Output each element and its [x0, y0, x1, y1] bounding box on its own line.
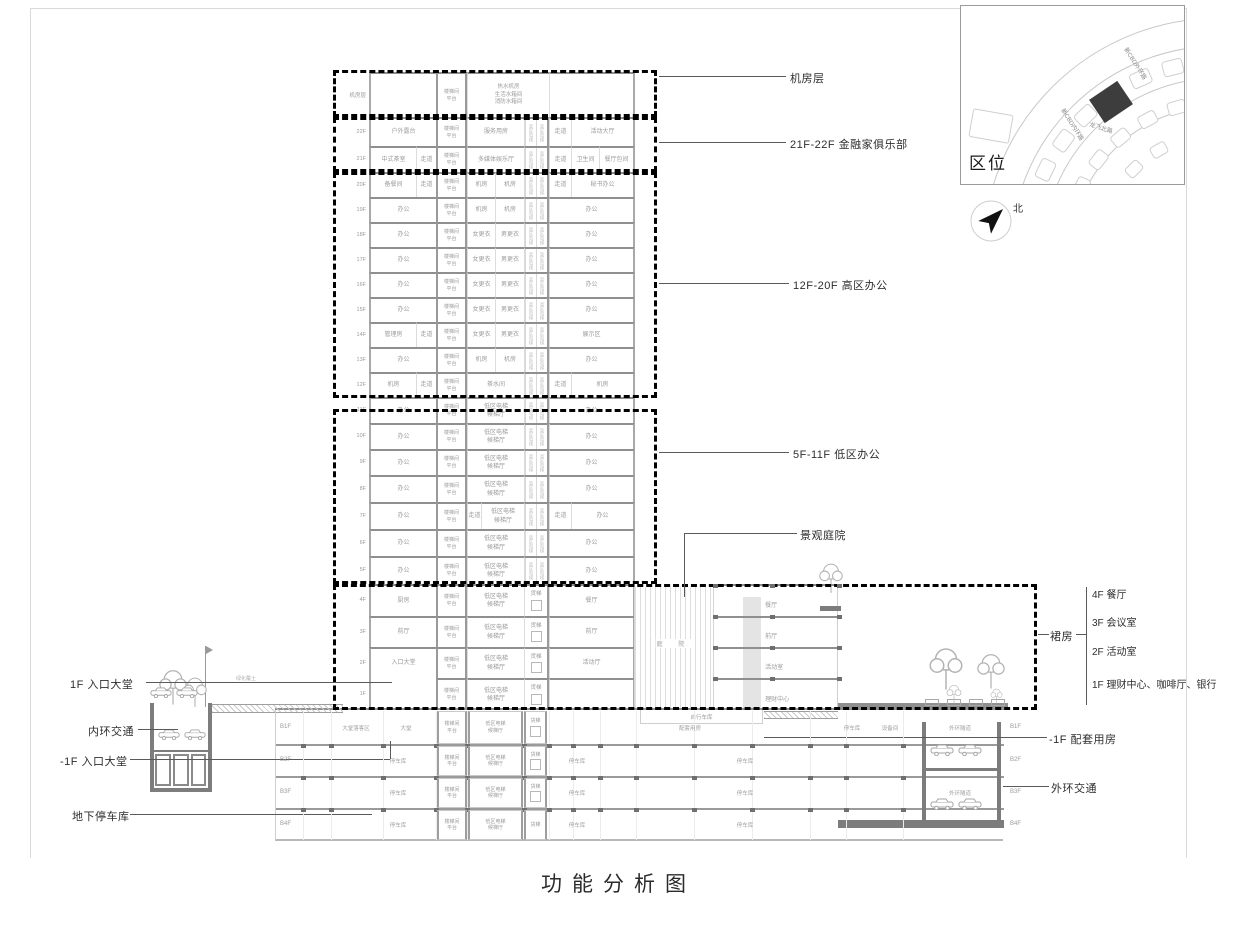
text-line: 办公: [585, 281, 597, 289]
g: [978, 203, 1009, 234]
leader: [1086, 587, 1087, 705]
annotation-podium-2f: 2F 活动室: [1092, 643, 1136, 658]
floor-label: 9F: [343, 449, 369, 475]
high-zone-elevator-shaft: 高区电梯: [525, 119, 536, 146]
text-line: 办公: [585, 206, 597, 214]
text-line: 办公: [585, 231, 597, 239]
column-nub: [808, 776, 813, 780]
floor-label: 21F: [343, 146, 369, 172]
room-cell: 机房: [495, 172, 524, 197]
room-cell: 楼梯间平台: [436, 372, 467, 397]
column-nub: [837, 615, 842, 619]
floor-row-2F: 2F入口大堂楼梯间平台低区电梯候梯厅货梯活动厅: [343, 647, 635, 678]
floor-row-5F: 5F办公楼梯间平台低区电梯候梯厅高区电梯高区电梯办公: [343, 556, 635, 584]
annotation-podium-group: 裙房: [1050, 628, 1073, 644]
room-cell: 办公: [549, 347, 635, 372]
room-cell: 办公: [549, 397, 635, 423]
annotation-high-office: 12F-20F 高区办公: [793, 277, 888, 293]
text-line: 楼梯间: [444, 179, 459, 186]
annotation-podium-3f: 3F 会议室: [1092, 614, 1136, 629]
freight-elevator-label: 货梯: [530, 685, 541, 692]
text-line: 平台: [446, 695, 456, 702]
high-zone-elevator-shaft: 高区电梯: [525, 504, 536, 529]
text-line: 办公: [397, 433, 409, 441]
text-line: 候梯厅: [487, 633, 505, 641]
column-nub: [844, 776, 849, 780]
room-cell: 楼梯间平台: [436, 247, 467, 272]
column-nub: [713, 646, 718, 650]
text-line: 平台: [446, 361, 456, 368]
text-line: 办公: [397, 306, 409, 314]
text-line: 办公: [397, 231, 409, 239]
elevator-shaft: 高区电梯高区电梯: [524, 117, 549, 146]
floor-label: 2F: [343, 647, 369, 678]
high-zone-elevator-shaft: 高区电梯: [525, 477, 536, 502]
leader: [659, 76, 786, 77]
text-line: 入口大堂: [391, 659, 415, 667]
elevator-shaft: 高区电梯高区电梯: [524, 347, 549, 372]
leader: [130, 814, 372, 815]
room-cell: 楼梯间平台: [436, 397, 467, 423]
room-cell: 低区电梯候梯厅: [467, 556, 524, 584]
room-cell: 管理房: [369, 322, 416, 347]
high-zone-elevator-shaft: 高区电梯: [525, 531, 536, 556]
text-line: 候梯厅: [488, 728, 503, 735]
floor-label: 4F: [343, 584, 369, 616]
room-label: 活动室: [765, 662, 783, 671]
text-line: 楼梯间: [444, 456, 459, 463]
text-line: 女更衣: [472, 256, 490, 264]
room-cell: 楼梯间平台: [436, 146, 467, 172]
annotation-lobby-b1: -1F 入口大堂: [60, 753, 128, 769]
text-line: 办公: [397, 356, 409, 364]
room-cell: 办公: [369, 247, 436, 272]
room-cell: 机房: [467, 197, 495, 222]
annotation-b1-support: -1F 配套用房: [1049, 731, 1117, 747]
high-zone-elevator-shaft: 高区电梯: [525, 174, 536, 197]
elevator-shaft: 高区电梯高区电梯: [524, 502, 549, 529]
rect: [1110, 127, 1132, 149]
column-nub: [844, 808, 849, 812]
high-zone-elevator-shaft: 高区电梯: [525, 274, 536, 297]
north-label: 北: [1013, 200, 1023, 215]
room-cell: 中式茶室: [369, 146, 416, 172]
text-line: 平台: [446, 186, 456, 193]
text-line: 平台: [446, 463, 456, 470]
high-zone-elevator-shaft: 高区电梯: [525, 148, 536, 172]
column-nub: [547, 744, 552, 748]
room-label: 餐厅: [765, 600, 777, 609]
text-line: 货梯: [530, 784, 540, 791]
text-line: 平台: [447, 761, 457, 768]
room-label: 停车库: [390, 789, 407, 797]
ring-roads: [983, 18, 1184, 184]
text-line: 楼梯间: [444, 304, 459, 311]
text-line: 低区电梯: [484, 535, 508, 543]
text-line: 走道: [420, 381, 432, 389]
column-nub: [692, 776, 697, 780]
text-line: 平台: [446, 286, 456, 293]
column-nub: [381, 776, 386, 780]
annotation-low-office: 5F-11F 低区办公: [793, 446, 880, 462]
floor-row-20F: 20F备餐间走道楼梯间平台机房机房高区电梯高区电梯走道秘书办公: [343, 172, 635, 197]
podium-right-section: 餐厅 前厅 活动室 理财中心: [713, 584, 838, 710]
text-line: 走道: [554, 181, 566, 189]
room-label: 大堂: [400, 724, 411, 732]
text-line: 机房: [475, 206, 487, 214]
basement-core-cell: 低区电梯候梯厅: [468, 746, 523, 776]
high-zone-elevator-shaft: 高区电梯: [525, 349, 536, 372]
high-zone-elevator-shaft: 高区电梯: [536, 374, 547, 397]
room-cell: 机房: [495, 347, 524, 372]
room-cell: 办公: [369, 397, 436, 423]
room-cell: 办公: [369, 423, 436, 449]
text-line: 平台: [446, 211, 456, 218]
high-zone-elevator-shaft: 高区电梯: [536, 119, 547, 146]
deck-label: 绿化覆土: [236, 675, 256, 682]
room-cell: 女更衣: [467, 297, 495, 322]
text-line: 平台: [447, 728, 457, 735]
basement-core-cell: 楼梯间平台: [437, 810, 467, 840]
text-line: 办公: [397, 512, 409, 520]
high-zone-elevator-shaft: 高区电梯: [525, 199, 536, 222]
floor-label: 16F: [343, 272, 369, 297]
text-line: 走道: [554, 128, 566, 136]
room-cell: 货梯: [524, 647, 549, 678]
text-line: 楼梯间: [444, 89, 459, 96]
leader: [138, 729, 178, 730]
column-nub: [547, 808, 552, 812]
high-zone-elevator-shaft: 高区电梯: [536, 249, 547, 272]
room-cell: 走道: [549, 117, 571, 146]
room-cell: 女更衣: [467, 322, 495, 347]
high-zone-elevator-shaft: 高区电梯: [536, 531, 547, 556]
elevator-door-icon: [530, 791, 541, 802]
high-zone-elevator-shaft: 高区电梯: [525, 425, 536, 449]
use: [931, 799, 953, 810]
text-line: 办公: [397, 485, 409, 493]
room-cell: 办公: [549, 272, 635, 297]
text-line: 平台: [446, 236, 456, 243]
room-label: 大堂落客区: [342, 724, 370, 732]
leader: [146, 682, 392, 683]
text-line: 楼梯间: [444, 379, 459, 386]
text-line: 楼梯间: [444, 688, 459, 695]
text-line: 男更衣: [501, 306, 519, 314]
floor-row-11F: 11F办公楼梯间平台低区电梯候梯厅高区电梯高区电梯办公: [343, 397, 635, 423]
text-line: 服务用房: [484, 128, 508, 136]
text-line: 楼梯间: [444, 354, 459, 361]
room-cell: 货梯: [524, 678, 549, 710]
column-nub: [571, 808, 576, 812]
room-cell: 楼梯间平台: [436, 322, 467, 347]
room-cell: 厨房: [369, 584, 436, 616]
room-cell: 机房: [369, 372, 416, 397]
room-cell: [549, 72, 635, 117]
column-nub: [837, 584, 842, 588]
text-line: 机房: [504, 206, 516, 214]
room-cell: 活动大厅: [571, 117, 635, 146]
text-line: 平台: [446, 664, 456, 671]
text-line: 楼梯间: [444, 594, 459, 601]
room-cell: 办公: [571, 502, 635, 529]
column-nub: [301, 808, 306, 812]
elevator-shaft: 高区电梯高区电梯: [524, 222, 549, 247]
leader: [764, 737, 1047, 738]
planter: [925, 699, 939, 706]
text-line: 楼梯间: [444, 510, 459, 517]
elevator-door-icon: [530, 726, 541, 737]
room-cell: 楼梯间平台: [436, 584, 467, 616]
floor-label: 20F: [343, 172, 369, 197]
room-cell: 机房: [571, 372, 635, 397]
room-cell: 低区电梯候梯厅: [467, 423, 524, 449]
rect: [1072, 176, 1092, 184]
outer-tunnel-slab: [922, 768, 1001, 771]
text-line: 低区电梯: [484, 403, 508, 411]
room-cell: 楼梯间平台: [436, 117, 467, 146]
floor-row-15F: 15F办公楼梯间平台女更衣男更衣高区电梯高区电梯办公: [343, 297, 635, 322]
floor-label: 6F: [343, 529, 369, 556]
floor-row-12F: 12F机房走道楼梯间平台茶水间高区电梯高区电梯走道机房: [343, 372, 635, 397]
rect: [969, 109, 1013, 144]
text-line: 候梯厅: [487, 601, 505, 609]
elevator-shaft: 高区电梯高区电梯: [524, 475, 549, 502]
text-line: 前厅: [585, 628, 597, 636]
basement-floor-label: B4F: [280, 821, 291, 827]
text-line: 男更衣: [501, 331, 519, 339]
car-icon: [184, 729, 206, 740]
basement-core-cell: 楼梯间平台: [437, 746, 467, 776]
planter: [947, 699, 961, 706]
room-cell: 餐厅: [549, 584, 635, 616]
rect: [1137, 110, 1159, 130]
text-line: 展示区: [582, 331, 600, 339]
use: [177, 688, 197, 698]
rect: [1052, 128, 1076, 153]
room-cell: 楼梯间平台: [436, 172, 467, 197]
text-line: 候梯厅: [488, 761, 503, 768]
basement-floor-label: B4F: [1010, 821, 1021, 827]
elevator-shaft: 高区电梯高区电梯: [524, 146, 549, 172]
text-line: 楼梯间: [444, 626, 459, 633]
column-nub: [571, 744, 576, 748]
planter: [969, 699, 983, 706]
text-line: 平台: [446, 601, 456, 608]
high-zone-elevator-shaft: 高区电梯: [536, 324, 547, 347]
map-title: 区位: [969, 149, 1007, 174]
column-nub: [692, 808, 697, 812]
floor-row-21F: 21F中式茶室走道楼梯间平台多媒体娱乐厅高区电梯高区电梯走道卫生间餐厅包间: [343, 146, 635, 172]
column-nub: [598, 776, 603, 780]
room-cell: 走道: [467, 502, 481, 529]
elevator-shaft: 高区电梯高区电梯: [524, 372, 549, 397]
tree-icon: [818, 562, 844, 594]
floor-label: 7F: [343, 502, 369, 529]
floor-label: 机房层: [343, 72, 369, 117]
room-label: 理财中心: [765, 694, 789, 703]
column-nub: [770, 584, 775, 588]
car-icon: [958, 744, 982, 756]
use: [959, 745, 981, 756]
room-cell: 走道: [549, 172, 571, 197]
text-line: 平台: [446, 517, 456, 524]
basement-core-cell: 货梯: [524, 711, 547, 744]
annotation-machine-level: 机房层: [790, 70, 825, 86]
annotation-lobby-1f: 1F 入口大堂: [70, 676, 133, 692]
basement-core-cell: 货梯: [524, 746, 547, 776]
leader: [659, 452, 789, 453]
floor-label: 5F: [343, 556, 369, 584]
basement-core-cell: 货梯: [524, 810, 547, 840]
basement-floor-label: B1F: [1010, 724, 1021, 730]
text-line: 楼梯间: [444, 657, 459, 664]
text-line: 货梯: [530, 822, 540, 829]
high-zone-elevator-shaft: 高区电梯: [536, 299, 547, 322]
text-line: 平台: [446, 633, 456, 640]
room-cell: 楼梯间平台: [436, 529, 467, 556]
room-cell: 机房: [495, 197, 524, 222]
floor-label: 10F: [343, 423, 369, 449]
text-line: 机房: [475, 356, 487, 364]
high-zone-elevator-shaft: 高区电梯: [525, 399, 536, 423]
basement-floor-label: B3F: [1010, 789, 1021, 795]
floor-row-4F: 4F厨房楼梯间平台低区电梯候梯厅货梯餐厅: [343, 584, 635, 616]
room-cell: 楼梯间平台: [436, 502, 467, 529]
room-cell: 餐厅包间: [599, 146, 635, 172]
column-nub: [750, 776, 755, 780]
room-cell: 办公: [369, 556, 436, 584]
room-cell: 前厅: [369, 616, 436, 647]
text-line: 楼梯间: [444, 254, 459, 261]
text-line: 活动厅: [582, 659, 600, 667]
floor-label: 13F: [343, 347, 369, 372]
text-line: 候梯厅: [487, 544, 505, 552]
basement-core-cell: 楼梯间平台: [437, 711, 467, 744]
high-zone-elevator-shaft: 高区电梯: [525, 451, 536, 475]
text-line: 走道: [554, 381, 566, 389]
text-line: 楼梯间: [444, 126, 459, 133]
room-cell: 楼梯间平台: [436, 616, 467, 647]
room-label: 停车库: [737, 821, 754, 829]
text-line: 女更衣: [472, 306, 490, 314]
text-line: 楼梯间: [444, 430, 459, 437]
basement-floor-label: B3F: [280, 789, 291, 795]
freight-elevator-label: 货梯: [530, 591, 541, 598]
floor-row-机房层: 机房层楼梯间平台热水机房生活水箱间消防水箱间: [343, 72, 635, 117]
text-line: 候梯厅: [487, 411, 505, 419]
basement-floor-label: B2F: [1010, 757, 1021, 763]
room-cell: 低区电梯候梯厅: [467, 449, 524, 475]
text-line: 候梯厅: [488, 825, 503, 832]
planter: [991, 699, 1005, 706]
floor-row-9F: 9F办公楼梯间平台低区电梯候梯厅高区电梯高区电梯办公: [343, 449, 635, 475]
room-cell: 走道: [549, 502, 571, 529]
text-line: 候梯厅: [487, 695, 505, 703]
text-line: 办公: [397, 407, 409, 415]
room-label: 停车库: [737, 757, 754, 765]
text-line: 低区电梯: [484, 687, 508, 695]
text-line: 办公: [585, 567, 597, 575]
room-cell: 备餐间: [369, 172, 416, 197]
annotation-club: 21F-22F 金融家俱乐部: [790, 136, 908, 152]
drawing-title: 功能分析图: [0, 868, 1237, 898]
column-nub: [301, 776, 306, 780]
room-cell: 低区电梯候梯厅: [467, 584, 524, 616]
text-line: 候梯厅: [487, 490, 505, 498]
high-zone-elevator-shaft: 高区电梯: [525, 558, 536, 584]
room-cell: 楼梯间平台: [436, 72, 467, 117]
high-zone-elevator-shaft: 高区电梯: [525, 224, 536, 247]
car-icon: [930, 798, 954, 810]
room-cell: 办公: [369, 197, 436, 222]
room-cell: 低区电梯候梯厅: [467, 529, 524, 556]
floor-row-18F: 18F办公楼梯间平台女更衣男更衣高区电梯高区电梯办公: [343, 222, 635, 247]
room-cell: 楼梯间平台: [436, 647, 467, 678]
room-cell: 展示区: [549, 322, 635, 347]
room-cell: 楼梯间平台: [436, 347, 467, 372]
text-line: 办公: [585, 256, 597, 264]
sheet-border-left: [30, 8, 31, 858]
room-cell: 办公: [369, 449, 436, 475]
elevator-shaft: 高区电梯高区电梯: [524, 322, 549, 347]
high-zone-elevator-shaft: 高区电梯: [525, 324, 536, 347]
room-cell: 低区电梯候梯厅: [481, 502, 524, 529]
text-line: 平台: [446, 336, 456, 343]
north-arrow-icon: [968, 198, 1016, 246]
elevator-shaft: 高区电梯高区电梯: [524, 397, 549, 423]
basement-floor-label: B1F: [280, 724, 291, 730]
column-nub: [692, 744, 697, 748]
text-line: 低区电梯: [484, 593, 508, 601]
floor-row-10F: 10F办公楼梯间平台低区电梯候梯厅高区电梯高区电梯办公: [343, 423, 635, 449]
room-cell: 低区电梯候梯厅: [467, 475, 524, 502]
text-line: 男更衣: [501, 256, 519, 264]
car-icon: [176, 687, 198, 698]
text-line: 平台: [446, 96, 456, 103]
column-nub: [901, 744, 906, 748]
freight-elevator-label: 货梯: [530, 654, 541, 661]
text-line: 茶水间: [487, 381, 505, 389]
room-cell: 办公: [549, 247, 635, 272]
text-line: 前厅: [397, 628, 409, 636]
high-zone-elevator-shaft: 高区电梯: [536, 504, 547, 529]
text-line: 候梯厅: [487, 571, 505, 579]
floor-row-6F: 6F办公楼梯间平台低区电梯候梯厅高区电梯高区电梯办公: [343, 529, 635, 556]
elevator-shaft: 高区电梯高区电梯: [524, 529, 549, 556]
room-cell: 走道: [416, 372, 436, 397]
room-cell: 货梯: [524, 616, 549, 647]
room-cell: 热水机房生活水箱间消防水箱间: [467, 72, 549, 117]
polygon: [978, 203, 1009, 234]
room-cell: 机房: [467, 347, 495, 372]
text-line: 货梯: [530, 752, 540, 759]
room-cell: 低区电梯候梯厅: [467, 397, 524, 423]
floor-row-8F: 8F办公楼梯间平台低区电梯候梯厅高区电梯高区电梯办公: [343, 475, 635, 502]
text-line: 平台: [446, 311, 456, 318]
text-line: 机房: [596, 381, 608, 389]
elevator-shaft: 高区电梯高区电梯: [524, 423, 549, 449]
room-cell: 楼梯间平台: [436, 423, 467, 449]
rect: [1034, 158, 1056, 183]
room-cell: 楼梯间平台: [436, 272, 467, 297]
column-nub: [329, 744, 334, 748]
text-line: 办公: [397, 256, 409, 264]
room-label: 停车库: [390, 821, 407, 829]
text-line: 办公: [596, 512, 608, 520]
text-line: 楼梯间: [444, 279, 459, 286]
text-line: 走道: [420, 181, 432, 189]
